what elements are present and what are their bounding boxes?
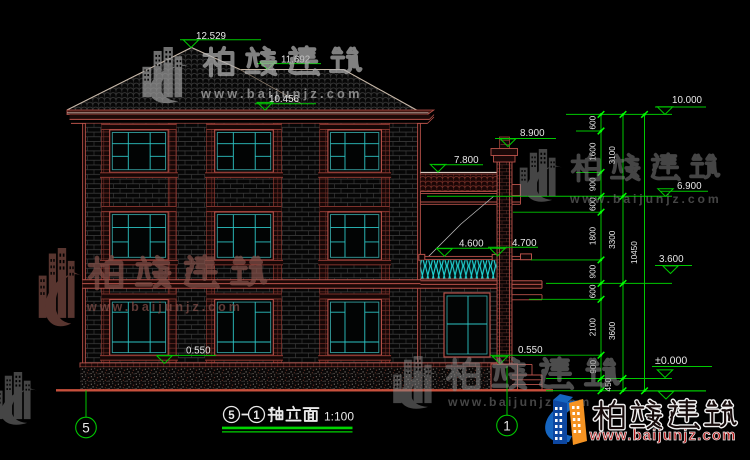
svg-text:1:100: 1:100 (324, 410, 354, 424)
svg-text:0.550: 0.550 (518, 345, 543, 356)
svg-text:5: 5 (228, 410, 235, 422)
svg-text:±0.000: ±0.000 (655, 355, 687, 367)
svg-text:1: 1 (503, 419, 511, 434)
svg-text:3600: 3600 (608, 321, 617, 340)
svg-text:8.900: 8.900 (520, 128, 545, 139)
svg-text:1: 1 (253, 410, 260, 422)
svg-text:10450: 10450 (630, 241, 639, 264)
svg-text:600: 600 (589, 115, 598, 129)
svg-text:10.000: 10.000 (672, 95, 703, 106)
svg-text:www.baijunjz.com: www.baijunjz.com (86, 300, 243, 314)
svg-text:0.550: 0.550 (186, 346, 211, 357)
svg-text:600: 600 (589, 284, 598, 298)
svg-text:12.529: 12.529 (196, 31, 226, 42)
svg-text:6.900: 6.900 (677, 181, 702, 192)
svg-text:www.baijunjz.com: www.baijunjz.com (569, 192, 722, 206)
svg-text:www.baijunjz.com: www.baijunjz.com (588, 427, 736, 444)
svg-text:www.baijunjz.com: www.baijunjz.com (200, 86, 363, 101)
svg-text:3.600: 3.600 (659, 254, 684, 265)
svg-text:2100: 2100 (589, 318, 598, 337)
svg-text:5: 5 (82, 421, 90, 436)
svg-text:1800: 1800 (589, 226, 598, 245)
svg-text:3300: 3300 (608, 230, 617, 249)
svg-text:900: 900 (589, 264, 598, 278)
